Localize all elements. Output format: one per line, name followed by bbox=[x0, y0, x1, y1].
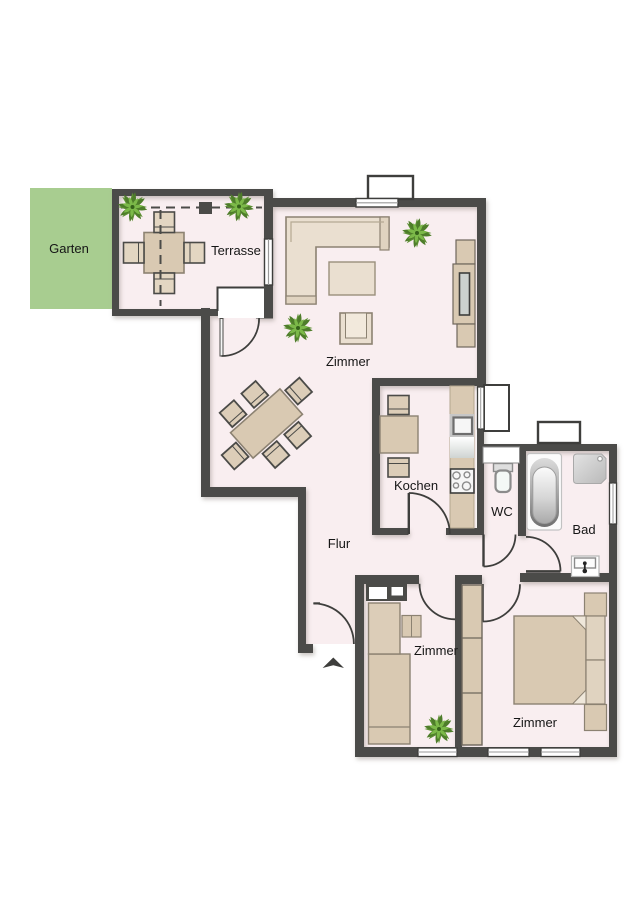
svg-text:Kochen: Kochen bbox=[394, 478, 438, 493]
svg-text:WC: WC bbox=[491, 504, 513, 519]
svg-text:Garten: Garten bbox=[49, 241, 89, 256]
svg-text:Terrasse: Terrasse bbox=[211, 243, 261, 258]
svg-text:Zimmer: Zimmer bbox=[326, 354, 371, 369]
svg-text:Zimmer: Zimmer bbox=[513, 715, 558, 730]
svg-text:Zimmer: Zimmer bbox=[414, 643, 459, 658]
svg-text:Flur: Flur bbox=[328, 536, 351, 551]
svg-text:Bad: Bad bbox=[572, 522, 595, 537]
